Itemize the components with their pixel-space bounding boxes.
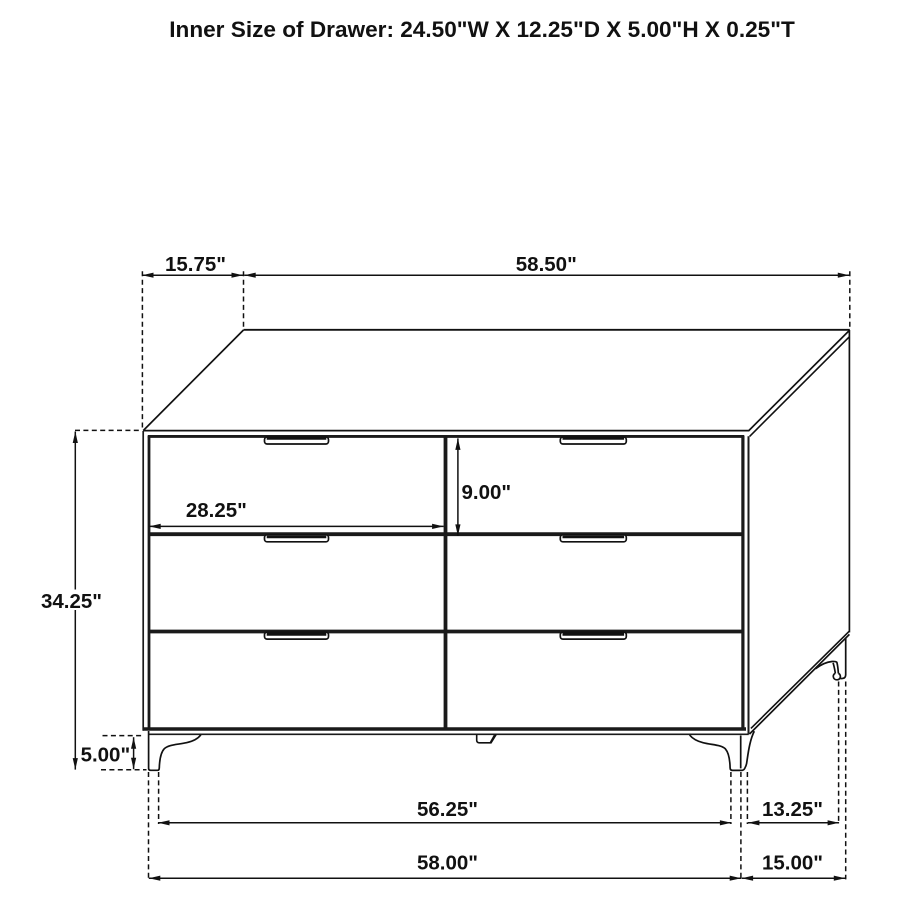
svg-text:13.25": 13.25": [762, 798, 823, 821]
svg-text:Inner Size of Drawer: 24.50"W: Inner Size of Drawer: 24.50"W X 12.25"D …: [169, 17, 795, 42]
svg-text:58.00": 58.00": [417, 852, 478, 875]
svg-text:28.25": 28.25": [186, 499, 247, 522]
svg-text:58.50": 58.50": [516, 253, 577, 276]
svg-text:34.25": 34.25": [41, 590, 102, 613]
svg-text:56.25": 56.25": [417, 798, 478, 821]
svg-text:5.00": 5.00": [81, 744, 131, 767]
svg-text:15.75": 15.75": [165, 253, 226, 276]
svg-text:15.00": 15.00": [762, 852, 823, 875]
svg-text:9.00": 9.00": [462, 481, 512, 504]
